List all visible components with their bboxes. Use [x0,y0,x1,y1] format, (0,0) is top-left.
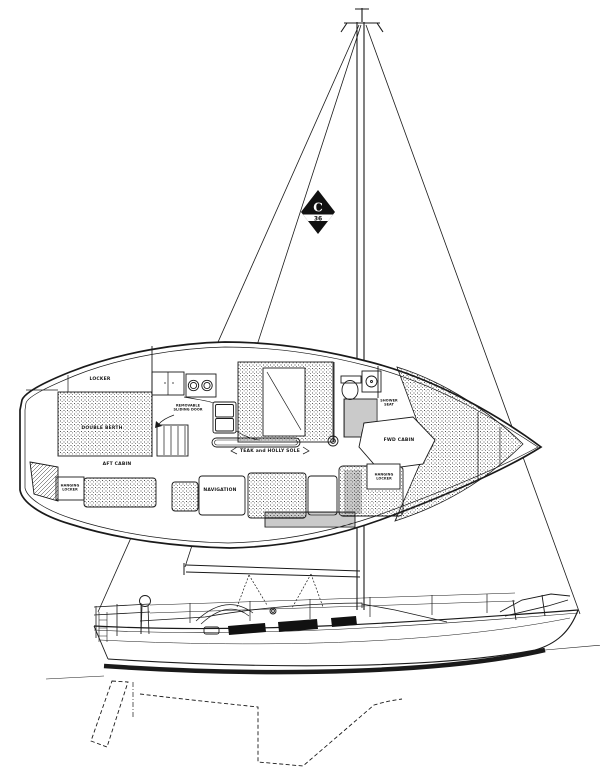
lifelines [150,593,515,613]
cabin-window [228,623,266,635]
label-fwd-cabin: FWD CABIN [383,437,415,442]
label-aft-cabin: AFT CABIN [102,461,132,466]
masthead-fitting [341,8,383,32]
label-navigation: NAVIGATION [203,487,237,492]
boom [184,563,360,577]
interior-plan [20,342,541,548]
sailboat-drawing: C 36 [0,0,600,775]
double-berth-area [58,392,152,456]
nav-seat [172,482,198,511]
label-cabin-sole: TEAK and HOLLY SOLE [240,448,301,453]
forestay [366,25,580,614]
line-art: C 36 [0,0,600,775]
label-double-berth: DOUBLE BERTH [81,425,123,430]
nav-desk [199,476,245,515]
aft-seat [84,478,156,507]
bow-pulpit [500,594,570,620]
label-removable-door: REMOVABLE SLIDING DOOR [173,404,203,412]
label-shower-seat: SHOWER SEAT [380,399,398,407]
boot-stripe [104,650,545,672]
insignia-number: 36 [314,216,322,223]
label-hanging-locker-aft: HANGING LOCKER [60,484,79,492]
settee-cushion [248,473,306,518]
rudder [91,681,128,747]
cabin-trunk [140,603,447,622]
label-locker: LOCKER [89,376,111,381]
hull-profile [46,563,600,766]
berth-pullout-slats [265,512,355,527]
insignia-letter: C [313,201,323,215]
cabin-window [331,616,357,627]
label-hanging-locker-fwd: HANGING LOCKER [374,473,393,481]
keel [140,694,402,766]
dodger-frame [196,605,253,624]
